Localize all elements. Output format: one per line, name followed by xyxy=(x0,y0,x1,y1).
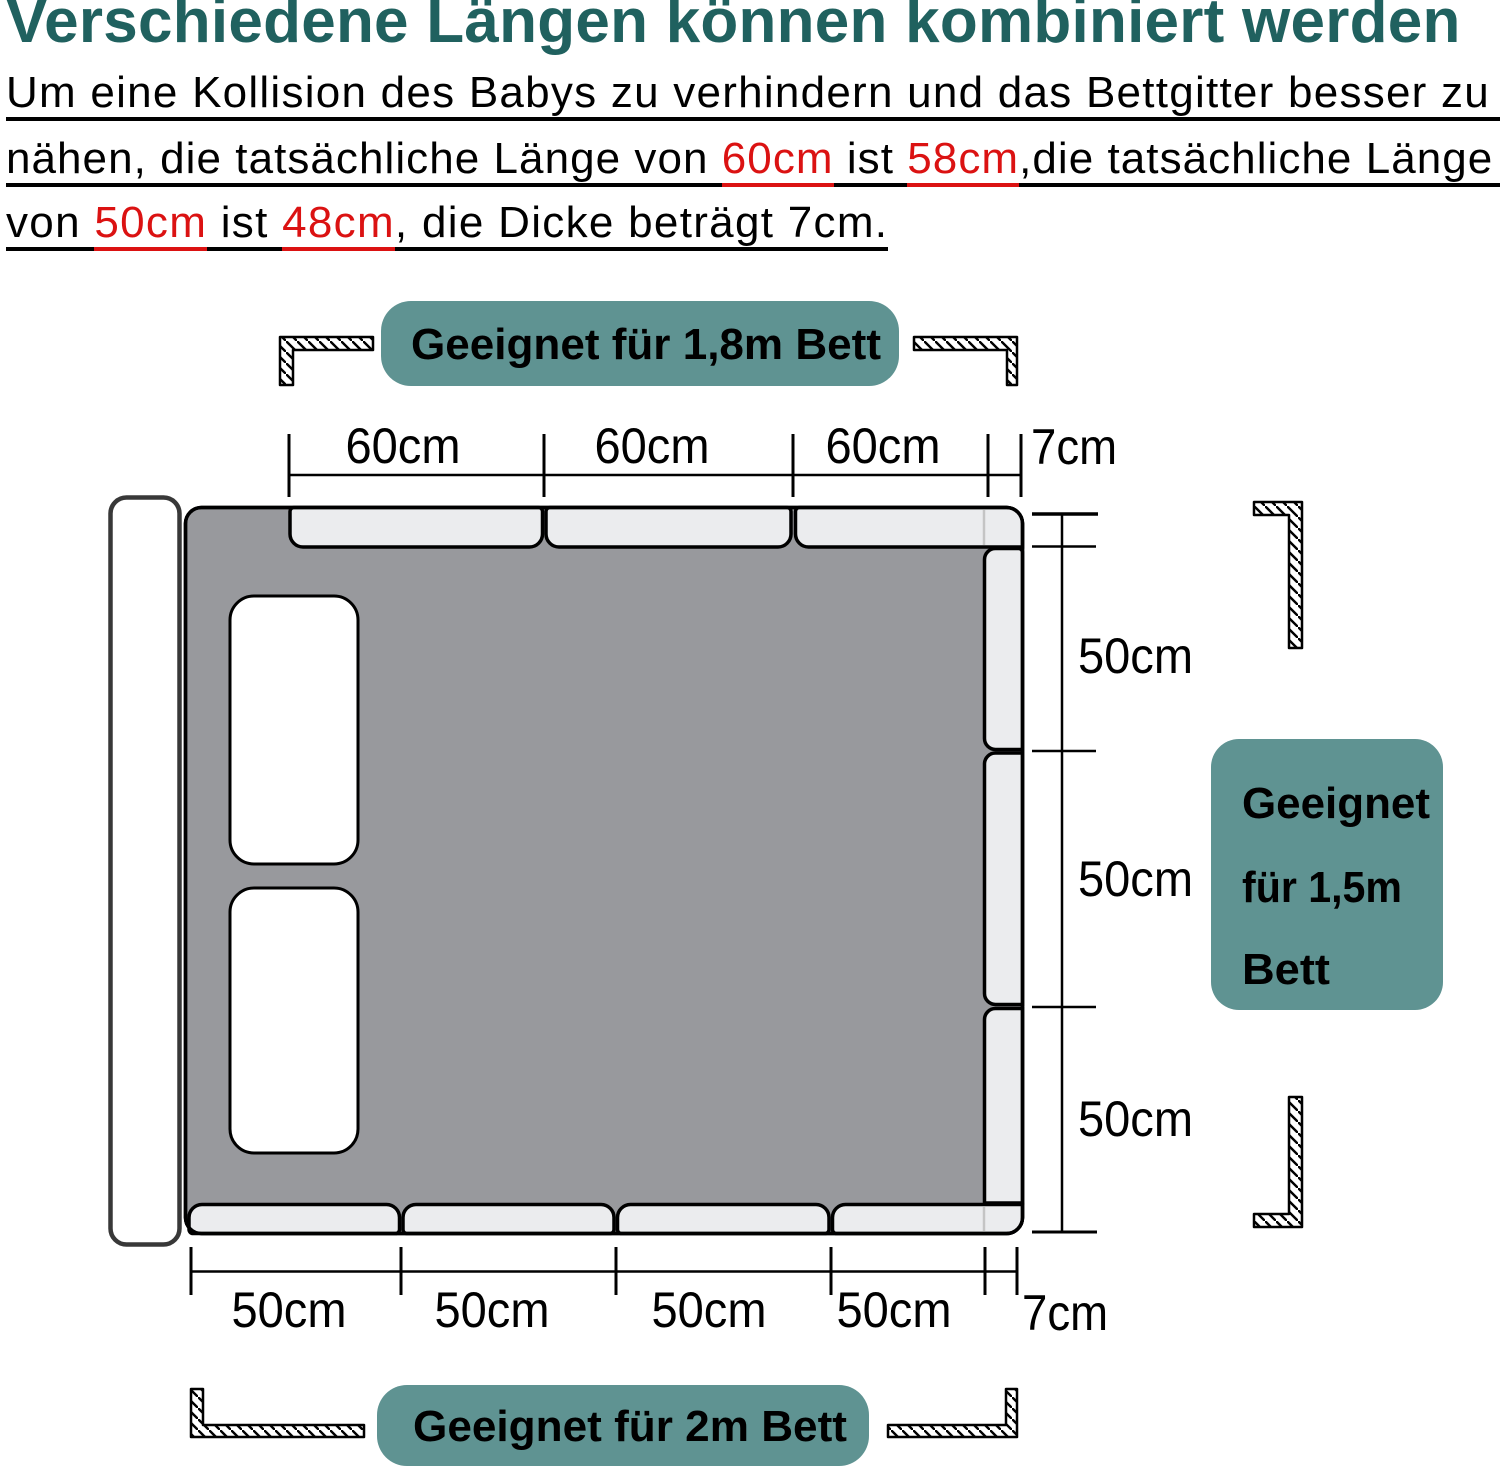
svg-text:50cm: 50cm xyxy=(652,1281,767,1338)
svg-text:50cm: 50cm xyxy=(1078,850,1193,907)
svg-text:Geeignet für 2m Bett: Geeignet für 2m Bett xyxy=(413,1402,847,1451)
svg-text:50cm: 50cm xyxy=(837,1281,952,1338)
svg-text:Geeignet für 1,8m Bett: Geeignet für 1,8m Bett xyxy=(411,320,881,369)
svg-text:50cm: 50cm xyxy=(435,1281,550,1338)
svg-text:60cm: 60cm xyxy=(595,417,710,474)
svg-text:Geeignet: Geeignet xyxy=(1242,779,1430,828)
svg-text:für 1,5m: für 1,5m xyxy=(1242,863,1402,912)
svg-text:60cm: 60cm xyxy=(826,417,941,474)
svg-text:7cm: 7cm xyxy=(1031,418,1117,475)
svg-text:50cm: 50cm xyxy=(232,1281,347,1338)
svg-text:Bett: Bett xyxy=(1242,945,1330,994)
svg-text:50cm: 50cm xyxy=(1078,1090,1193,1147)
svg-text:50cm: 50cm xyxy=(1078,627,1193,684)
svg-text:7cm: 7cm xyxy=(1022,1284,1108,1341)
svg-text:60cm: 60cm xyxy=(346,417,461,474)
